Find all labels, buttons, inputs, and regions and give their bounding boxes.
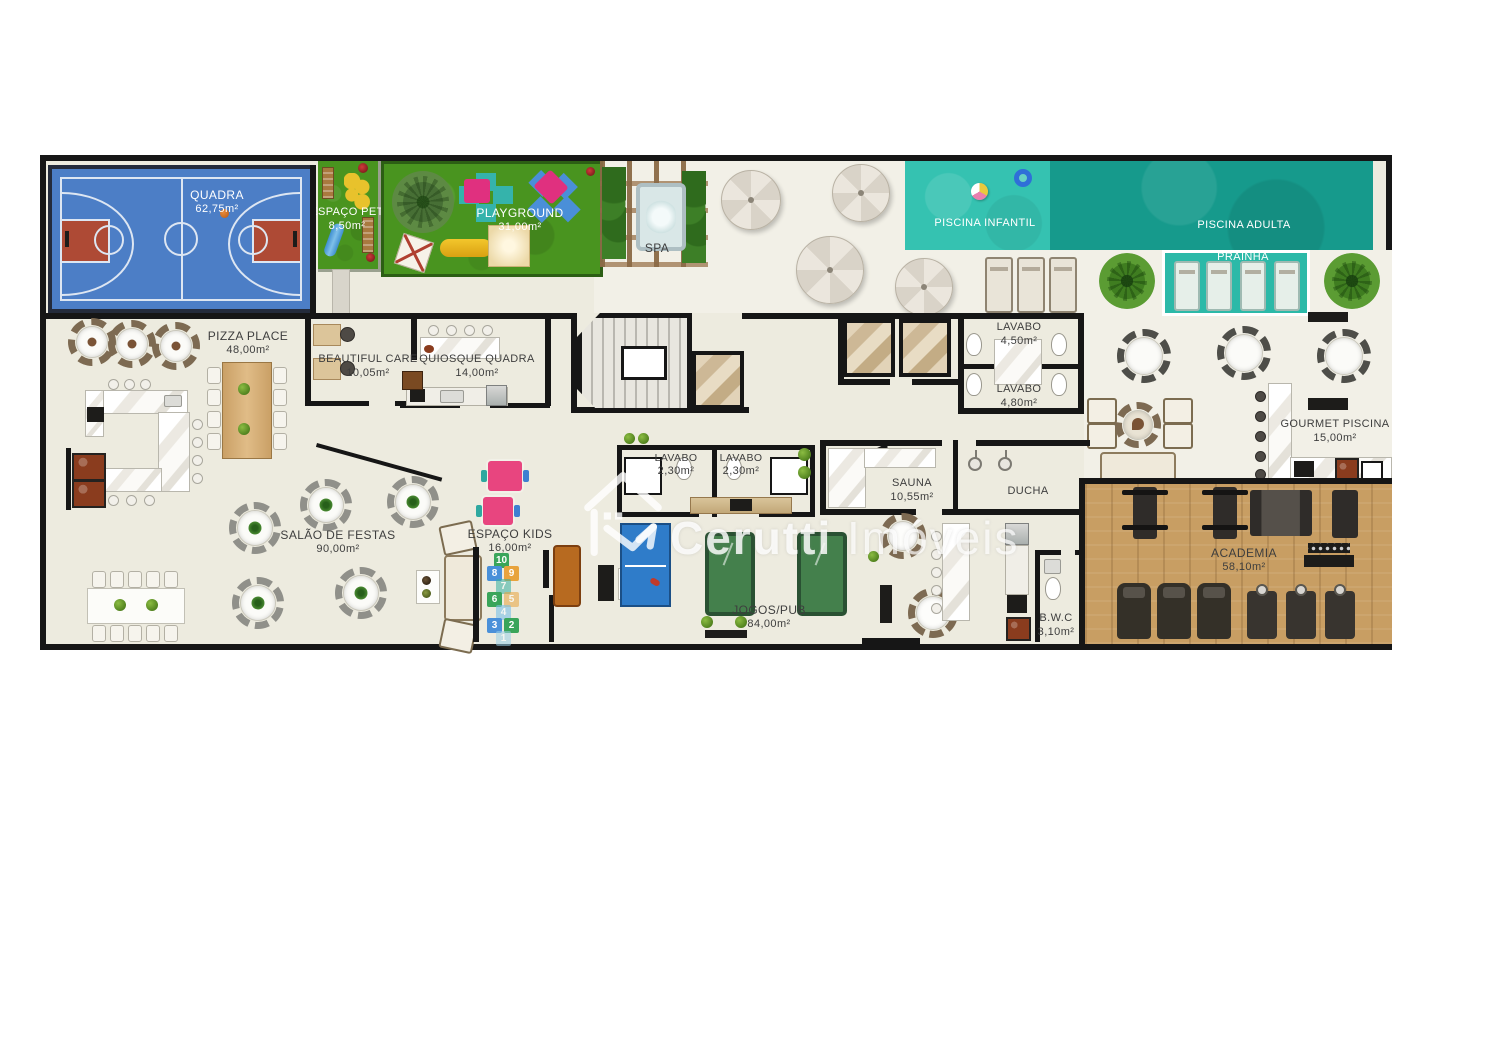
- elevator: [843, 319, 895, 377]
- room-label-piscina-adulta: PISCINA ADULTA: [1197, 219, 1290, 233]
- court-threepoint-arc: [60, 192, 134, 296]
- wall: [862, 638, 920, 650]
- sink: [1044, 559, 1061, 574]
- wall: [1078, 313, 1084, 413]
- decor-bowl: [424, 345, 434, 353]
- treadmill: [1157, 583, 1191, 639]
- room-area: 90,00m²: [280, 543, 395, 557]
- wet-lounger: [1274, 261, 1300, 311]
- wall: [305, 401, 369, 406]
- planter-bench: [1308, 398, 1348, 410]
- banquet-table: [343, 575, 379, 611]
- wall: [912, 379, 964, 385]
- floor-plan: QUADRA 62,75m² ESPAÇO PET 8,50m² PLAYGRO…: [40, 155, 1392, 650]
- room-name: LAVABO: [997, 383, 1042, 397]
- watermark-logo: [583, 466, 663, 562]
- room-label-spa: SPA: [645, 241, 669, 256]
- counter-stool: [464, 325, 475, 336]
- high-table: [880, 585, 892, 623]
- plant: [638, 433, 649, 444]
- dining-chair: [92, 571, 106, 588]
- table-plant: [114, 599, 126, 611]
- room-label-lavabo-4: LAVABO 2,30m²: [720, 452, 763, 479]
- room-label-jogos-pub: JOGOS/PUB 84,00m²: [732, 603, 806, 632]
- sun-lounger: [985, 257, 1013, 313]
- room-name: PISCINA ADULTA: [1197, 219, 1290, 233]
- dining-chair: [164, 625, 178, 642]
- stair-landing: [621, 346, 667, 380]
- patio-umbrella: [832, 164, 890, 222]
- hoop-backboard-right: [293, 231, 297, 247]
- plant: [624, 433, 635, 444]
- elevator: [692, 351, 744, 409]
- communal-wood-table: [222, 362, 272, 459]
- room-area: 16,00m²: [468, 542, 553, 556]
- lounge-armchair: [1163, 423, 1193, 449]
- treadmill: [1197, 583, 1231, 639]
- walkway: [332, 269, 350, 317]
- cable-machine: [1250, 490, 1312, 536]
- counter-stool: [192, 473, 203, 484]
- wet-lounger: [1206, 261, 1232, 311]
- pool-float-ring: [1014, 169, 1032, 187]
- toilet: [1051, 333, 1067, 356]
- room-area: 8,50m²: [310, 220, 383, 234]
- exercise-bike: [1247, 591, 1277, 639]
- flower-pot: [358, 163, 368, 173]
- kitchen-counter: [100, 468, 162, 492]
- room-area: 15,00m²: [1280, 432, 1389, 446]
- tv-screen: [730, 499, 752, 511]
- rack-base: [1304, 555, 1354, 567]
- room-label-quadra: QUADRA 62,75m²: [190, 188, 244, 217]
- room-area: 10,55m²: [890, 491, 933, 505]
- double-sink: [440, 390, 464, 403]
- exercise-bike: [1325, 591, 1355, 639]
- room-label-gourmet-piscina: GOURMET PISCINA 15,00m²: [1280, 418, 1389, 446]
- beauty-station: [313, 324, 341, 346]
- room-name: BEAUTIFUL CARE: [318, 353, 417, 367]
- wall: [1079, 478, 1392, 484]
- wall: [310, 165, 316, 313]
- counter-stool: [482, 325, 493, 336]
- kids-picnic-table: [464, 179, 490, 203]
- room-area: 48,00m²: [208, 344, 288, 358]
- dining-chair: [273, 411, 287, 428]
- dining-chair: [273, 367, 287, 384]
- hopscotch-tile: 1: [496, 631, 511, 646]
- room-label-academia: ACADEMIA 58,10m²: [1211, 546, 1277, 575]
- room-area: 14,00m²: [419, 367, 534, 381]
- watermark-text: Cerutti Imóveis: [670, 511, 1019, 565]
- tv-cabinet: [598, 565, 614, 601]
- room-name: DUCHA: [1007, 485, 1048, 499]
- room-name: PISCINA INFANTIL: [934, 217, 1035, 231]
- room-label-quiosque-quadra: QUIOSQUE QUADRA 14,00m²: [419, 353, 534, 381]
- cooktop: [410, 389, 425, 402]
- wall: [1035, 550, 1061, 555]
- watermark-brand-secondary: Imóveis: [847, 512, 1019, 564]
- room-label-lavabo-1: LAVABO 4,50m²: [997, 321, 1042, 349]
- toilet: [966, 333, 982, 356]
- room-area: 2,30m²: [720, 465, 763, 479]
- counter-stool: [446, 325, 457, 336]
- tree: [392, 171, 454, 233]
- banquet-table: [237, 510, 273, 546]
- room-label-pizza-place: PIZZA PLACE 48,00m²: [208, 329, 288, 358]
- banquet-table: [240, 585, 276, 621]
- sun-lounger: [1049, 257, 1077, 313]
- room-name: ACADEMIA: [1211, 546, 1277, 561]
- court-center-circle: [164, 222, 198, 256]
- room-area: 3,10m²: [1038, 626, 1075, 640]
- room-area: 58,10m²: [1211, 561, 1277, 575]
- bar-stool: [1255, 391, 1266, 402]
- dining-chair: [128, 571, 142, 588]
- dining-chair: [146, 571, 160, 588]
- room-name: LAVABO: [997, 321, 1042, 335]
- room-area: 4,50m²: [997, 335, 1042, 349]
- dining-chair: [110, 625, 124, 642]
- room-label-sauna: SAUNA 10,55m²: [890, 477, 933, 505]
- lounge-armchair: [1087, 398, 1117, 424]
- room-label-lavabo-2: LAVABO 4,80m²: [997, 383, 1042, 411]
- dining-chair: [207, 433, 221, 450]
- wall: [46, 313, 577, 319]
- cafe-table: [116, 328, 148, 360]
- bench-press: [1213, 487, 1237, 539]
- buffet-table: [87, 588, 185, 624]
- wall: [820, 440, 942, 446]
- counter-stool: [192, 437, 203, 448]
- wall: [838, 379, 890, 385]
- shower-head: [968, 457, 982, 471]
- weight-machine: [1332, 490, 1358, 538]
- counter-stool: [126, 495, 137, 506]
- room-name: LAVABO: [655, 452, 698, 465]
- counter-stool: [108, 379, 119, 390]
- sauna-bench: [828, 448, 866, 508]
- room-label-piscina-infantil: PISCINA INFANTIL: [934, 217, 1035, 231]
- salon-chair: [340, 327, 355, 342]
- wall: [742, 313, 838, 319]
- wall: [958, 313, 964, 413]
- wall: [305, 318, 311, 406]
- table-plant: [238, 383, 250, 395]
- room-name: QUADRA: [190, 188, 244, 203]
- cooktop: [87, 407, 104, 422]
- room-area: 62,75m²: [190, 203, 244, 217]
- side-table: [416, 570, 440, 604]
- room-area: 31,00m²: [476, 221, 563, 235]
- basketball-court: [48, 165, 314, 313]
- plant: [798, 448, 811, 461]
- hoop-backboard-left: [65, 231, 69, 247]
- planter-bench: [1308, 312, 1348, 322]
- room-name: QUIOSQUE QUADRA: [419, 353, 534, 367]
- room-label-bwc: B.W.C 3,10m²: [1038, 612, 1075, 640]
- room-name: ESPAÇO PET: [310, 206, 383, 220]
- counter-stool: [140, 379, 151, 390]
- kids-table: [488, 461, 522, 491]
- room-label-prainha: PRAINHA: [1217, 251, 1269, 265]
- sun-lounger: [1017, 257, 1045, 313]
- pergola-vine: [602, 167, 626, 259]
- bbq-grill: [72, 453, 106, 481]
- treadmill: [1117, 583, 1151, 639]
- palm-tree: [1099, 253, 1155, 309]
- exercise-bike: [1286, 591, 1316, 639]
- plant: [701, 616, 713, 628]
- pet-bench: [322, 167, 334, 199]
- toilet: [1045, 577, 1061, 600]
- wall: [66, 448, 71, 510]
- wall: [953, 440, 958, 515]
- counter-stool: [144, 495, 155, 506]
- wall: [1079, 478, 1085, 644]
- room-name: SALÃO DE FESTAS: [280, 528, 395, 543]
- room-name: JOGOS/PUB: [732, 603, 806, 618]
- terrace-table: [1325, 337, 1363, 375]
- counter-stool: [124, 379, 135, 390]
- table-plant: [146, 599, 158, 611]
- patio-umbrella: [721, 170, 781, 230]
- table-decor: [1132, 418, 1144, 430]
- counter-stool: [192, 455, 203, 466]
- room-name: SPA: [645, 241, 669, 256]
- counter-stool: [192, 419, 203, 430]
- dining-chair: [146, 625, 160, 642]
- decor-item: [422, 589, 431, 598]
- refrigerator: [486, 385, 507, 406]
- terrace-table: [1125, 337, 1163, 375]
- dining-chair: [164, 571, 178, 588]
- room-name: GOURMET PISCINA: [1280, 418, 1389, 432]
- bar-stool: [1255, 431, 1266, 442]
- dining-chair: [207, 367, 221, 384]
- beach-ball: [971, 183, 988, 200]
- cooktop: [1294, 461, 1314, 477]
- banquet-table: [308, 487, 344, 523]
- wet-lounger: [1240, 261, 1266, 311]
- wall: [545, 318, 551, 406]
- room-name: B.W.C: [1038, 612, 1075, 626]
- sauna-bench: [864, 448, 936, 468]
- flower-pot: [366, 253, 375, 262]
- room-label-salao-de-festas: SALÃO DE FESTAS 90,00m²: [280, 528, 395, 557]
- palm-tree: [1324, 253, 1380, 309]
- cooktop: [1007, 595, 1027, 613]
- adult-pool: [1050, 161, 1373, 250]
- kitchen-counter: [158, 412, 190, 492]
- room-name: PRAINHA: [1217, 251, 1269, 265]
- room-label-ducha: DUCHA: [1007, 485, 1048, 499]
- shower-head: [998, 457, 1012, 471]
- court-threepoint-left: [60, 187, 140, 299]
- dining-chair: [207, 389, 221, 406]
- patio-umbrella: [895, 258, 953, 316]
- decor-item: [422, 576, 431, 585]
- bbq-grill: [1006, 617, 1031, 641]
- toilet: [1051, 373, 1067, 396]
- bar-stool: [1255, 411, 1266, 422]
- room-label-espaco-pet: ESPAÇO PET 8,50m²: [310, 206, 383, 234]
- dumbbell-rack: [1308, 543, 1350, 553]
- dining-chair: [128, 625, 142, 642]
- plant: [798, 466, 811, 479]
- wall: [473, 547, 479, 642]
- dining-chair: [92, 625, 106, 642]
- banquet-table: [395, 484, 431, 520]
- table-plant: [238, 423, 250, 435]
- room-label-playground: PLAYGROUND 31,00m²: [476, 206, 563, 235]
- bar-stool: [931, 603, 942, 614]
- terrace-table: [1225, 334, 1263, 372]
- room-area: 84,00m²: [732, 618, 806, 632]
- wall-diagonal: [316, 443, 442, 482]
- dining-chair: [110, 571, 124, 588]
- wall: [976, 440, 1090, 446]
- room-name: LAVABO: [720, 452, 763, 465]
- toilet: [966, 373, 982, 396]
- kids-table: [483, 497, 513, 525]
- lounge-armchair: [1163, 398, 1193, 424]
- counter-stool: [428, 325, 439, 336]
- flower-pot: [586, 167, 595, 176]
- room-name: PLAYGROUND: [476, 206, 563, 221]
- cafe-table: [160, 330, 192, 362]
- lounge-armchair: [1087, 423, 1117, 449]
- room-area: 4,80m²: [997, 397, 1042, 411]
- slide-ramp: [440, 239, 492, 257]
- patio-umbrella: [796, 236, 864, 304]
- wall: [820, 440, 826, 515]
- sink: [164, 395, 182, 407]
- room-name: SAUNA: [890, 477, 933, 491]
- leather-sofa: [553, 545, 581, 607]
- wall: [571, 313, 577, 413]
- room-name: ESPAÇO KIDS: [468, 527, 553, 542]
- counter-stool: [108, 495, 119, 506]
- lounge-armchair: [438, 618, 477, 654]
- wall: [964, 313, 1084, 319]
- house-roof-arrow-icon: [583, 466, 663, 562]
- dining-chair: [273, 433, 287, 450]
- bar-stool: [1255, 451, 1266, 462]
- wet-lounger: [1174, 261, 1200, 311]
- bar-stool: [931, 567, 942, 578]
- room-label-espaco-kids: ESPAÇO KIDS 16,00m²: [468, 527, 553, 556]
- dining-chair: [207, 411, 221, 428]
- watermark-brand-primary: Cerutti: [670, 512, 847, 564]
- dining-chair: [273, 389, 287, 406]
- room-name: PIZZA PLACE: [208, 329, 288, 344]
- bench-press: [1133, 487, 1157, 539]
- cafe-table: [76, 326, 108, 358]
- bar-stool: [931, 585, 942, 596]
- bbq-grill: [72, 480, 106, 508]
- elevator: [899, 319, 951, 377]
